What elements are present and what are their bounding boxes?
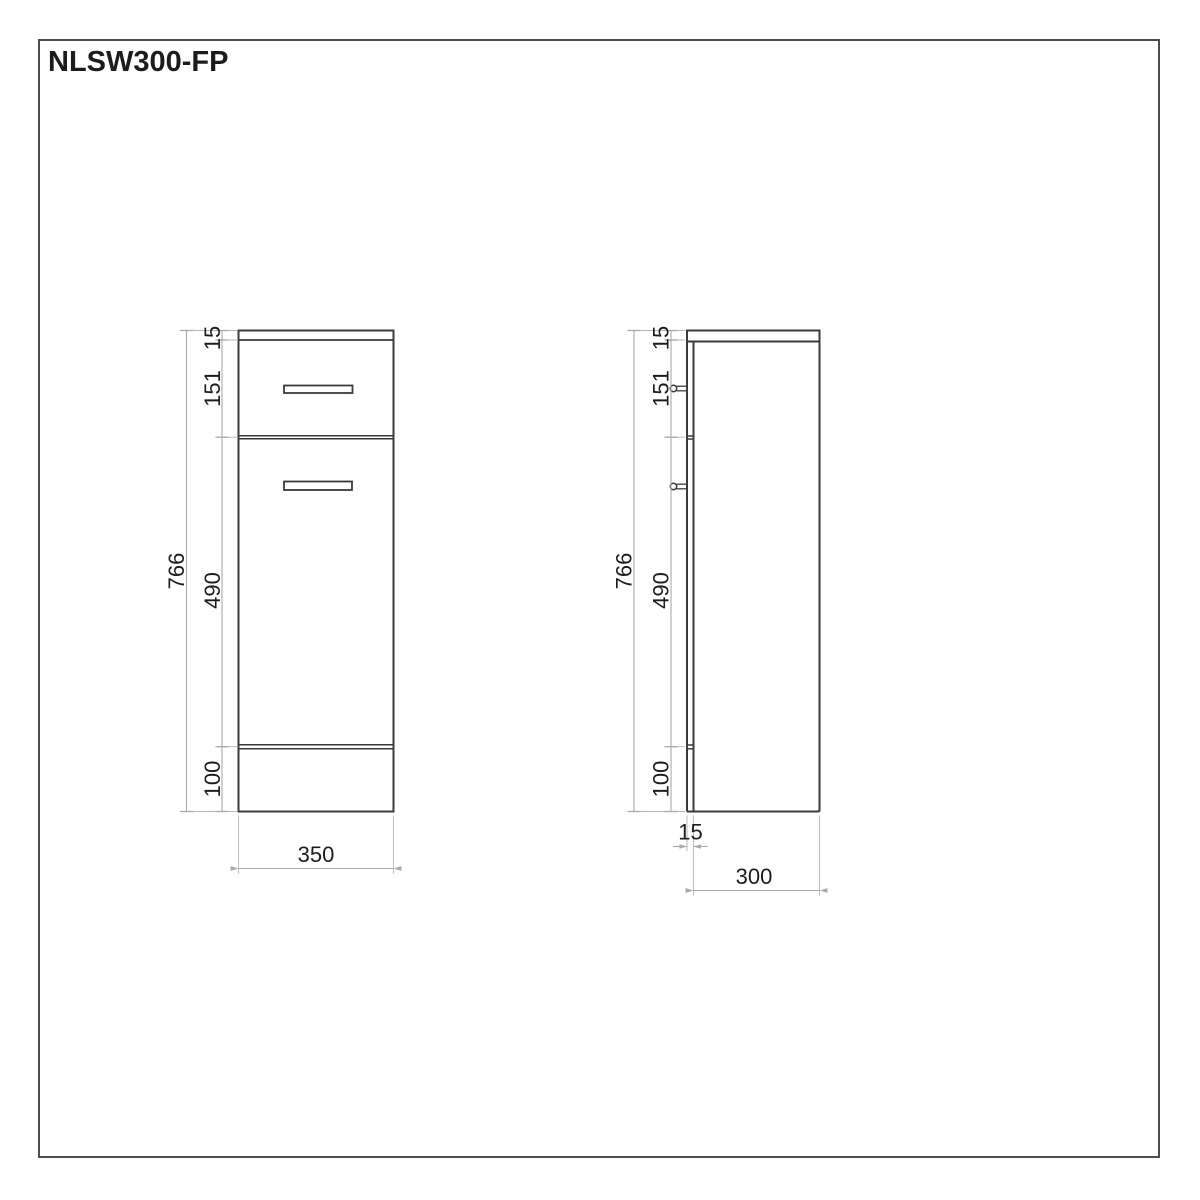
side-dim-label-top-thickness: 15 xyxy=(649,326,674,350)
front-door-handle xyxy=(284,482,352,491)
front-dim-label-drawer-height: 151 xyxy=(200,370,225,407)
front-dim-label-door-height: 490 xyxy=(200,572,225,609)
side-depth-arrow-left xyxy=(686,888,694,893)
side-depth-dimension: 300 xyxy=(686,816,828,896)
side-dim-label-total-height: 766 xyxy=(612,553,637,590)
front-view xyxy=(239,331,394,812)
side-dim-label-plinth-height: 100 xyxy=(649,761,674,798)
front-width-arrow-right xyxy=(394,866,402,871)
side-view xyxy=(670,331,819,812)
product-code-title: NLSW300-FP xyxy=(48,46,228,78)
side-thickness-arrow-right xyxy=(694,844,702,849)
side-dim-label-drawer-height: 151 xyxy=(649,370,674,407)
front-drawer-handle xyxy=(284,386,353,394)
front-width-arrow-left xyxy=(231,866,239,871)
front-dim-label-total-height: 766 xyxy=(164,553,189,590)
drawing-sheet: NLSW300-FP 15 151 490 100 76 xyxy=(0,0,1200,1200)
side-door-handle xyxy=(670,483,687,489)
front-cabinet-outline xyxy=(239,331,394,812)
side-thickness-arrow-left xyxy=(680,844,688,849)
technical-drawing: NLSW300-FP 15 151 490 100 76 xyxy=(0,0,1200,1200)
front-dim-label-width: 350 xyxy=(298,842,335,867)
side-dim-label-depth: 300 xyxy=(736,864,773,889)
side-door-thickness-dimension: 15 xyxy=(673,816,708,896)
side-depth-arrow-right xyxy=(820,888,828,893)
front-dimension-chain: 15 151 490 100 766 xyxy=(164,326,237,812)
side-worktop xyxy=(687,331,820,342)
front-dim-label-top-thickness: 15 xyxy=(200,326,225,350)
side-dim-label-door-height: 490 xyxy=(649,572,674,609)
front-width-dimension: 350 xyxy=(231,816,402,874)
side-dimension-chain: 15 151 490 100 766 xyxy=(612,326,686,812)
front-dim-label-plinth-height: 100 xyxy=(200,761,225,798)
side-dim-label-door-thickness: 15 xyxy=(678,820,702,845)
